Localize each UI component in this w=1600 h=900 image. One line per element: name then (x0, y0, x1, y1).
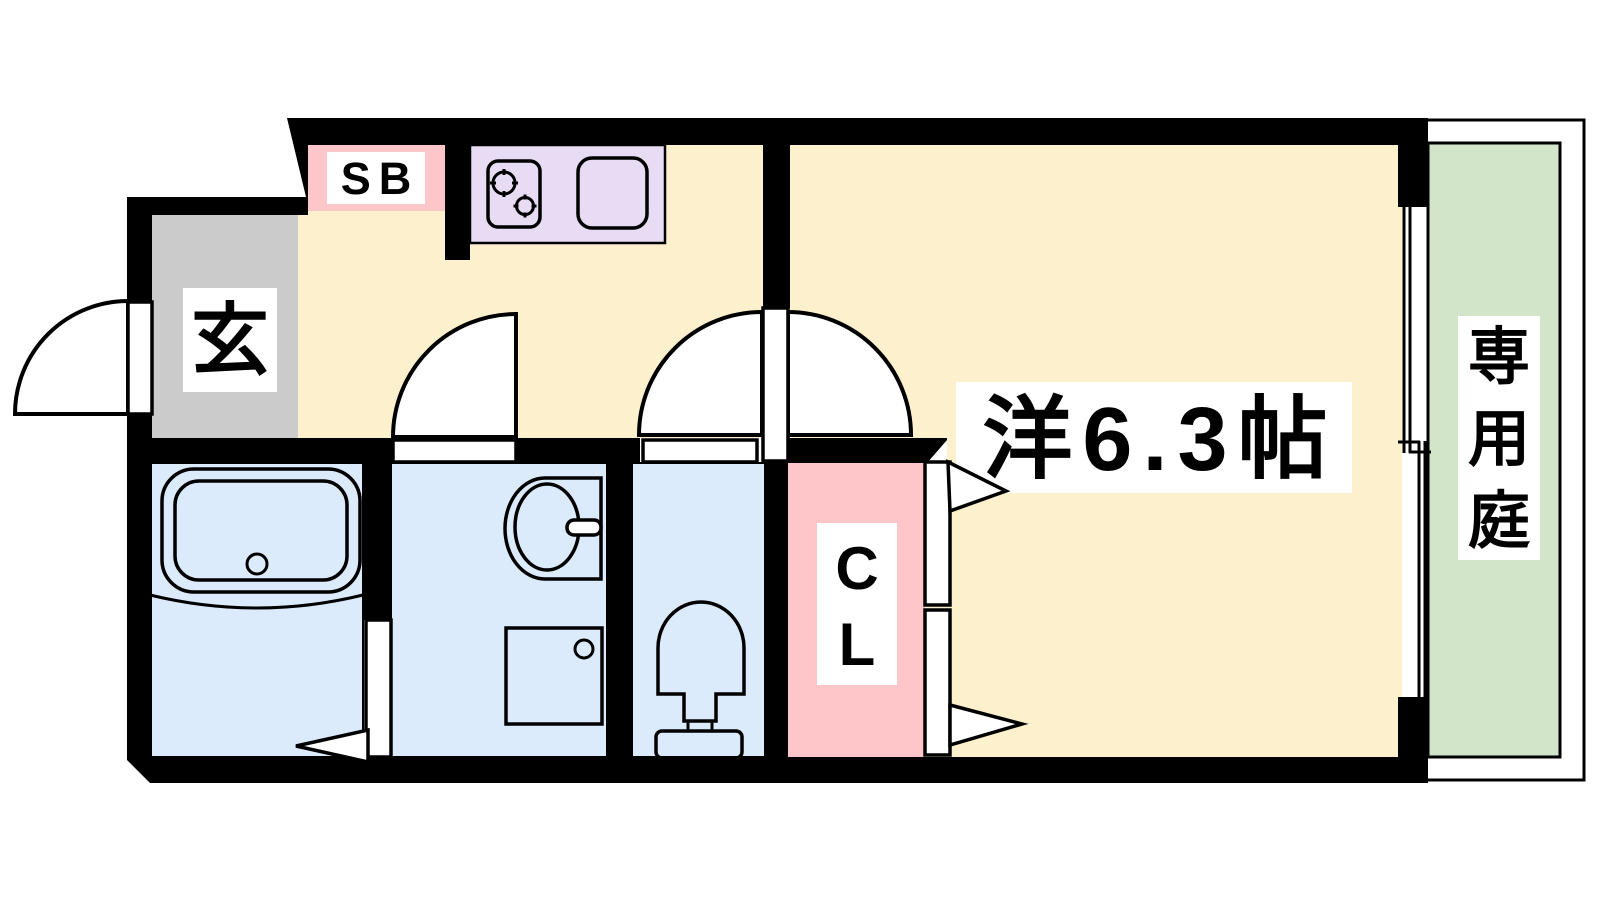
wall-right-top-stub (1398, 118, 1428, 207)
entrance-label: 玄 (191, 296, 269, 384)
front-door-swing-icon (15, 301, 128, 414)
wall-band-mid (516, 438, 640, 463)
closet-door-panel-top (925, 462, 950, 605)
garden-label-char-1: 専 (1468, 323, 1530, 392)
wall-bottom (127, 757, 1402, 783)
wall-kitchen-stub (445, 118, 470, 260)
wall-wash-toilet (607, 463, 632, 757)
wall-toilet-closet (765, 457, 788, 757)
wall-right-bottom-stub (1398, 697, 1428, 783)
bathroom-floor (150, 463, 363, 757)
room-label: 洋6.3帖 (982, 390, 1337, 490)
wall-closet-top (788, 438, 947, 463)
shoe-box-label: SB (341, 153, 420, 204)
floor-plan: 玄 SB C L 洋6.3帖 専 用 庭 (0, 0, 1600, 900)
toilet-door-leaf (643, 440, 757, 462)
washroom-door-leaf (393, 440, 516, 462)
wall-left-upper (127, 197, 152, 302)
closet-label-c: C (835, 535, 878, 602)
closet-door-panel-bottom (925, 610, 950, 755)
wall-left-lower (127, 415, 152, 783)
wall-band-left (150, 438, 393, 463)
toilet-room-floor (632, 463, 765, 757)
front-door-leaf (128, 302, 152, 414)
wall-bath-wash (363, 463, 391, 620)
room-door-leaf (763, 308, 788, 461)
faucet-icon (567, 520, 601, 535)
wall-room-divider (763, 118, 790, 308)
floor-plan-canvas: 玄 SB C L 洋6.3帖 専 用 庭 (0, 0, 1600, 900)
wall-entrance-top (127, 197, 308, 215)
garden-label-char-2: 用 (1468, 405, 1530, 474)
closet-label-l: L (839, 611, 876, 678)
garden-label-char-3: 庭 (1468, 487, 1531, 556)
